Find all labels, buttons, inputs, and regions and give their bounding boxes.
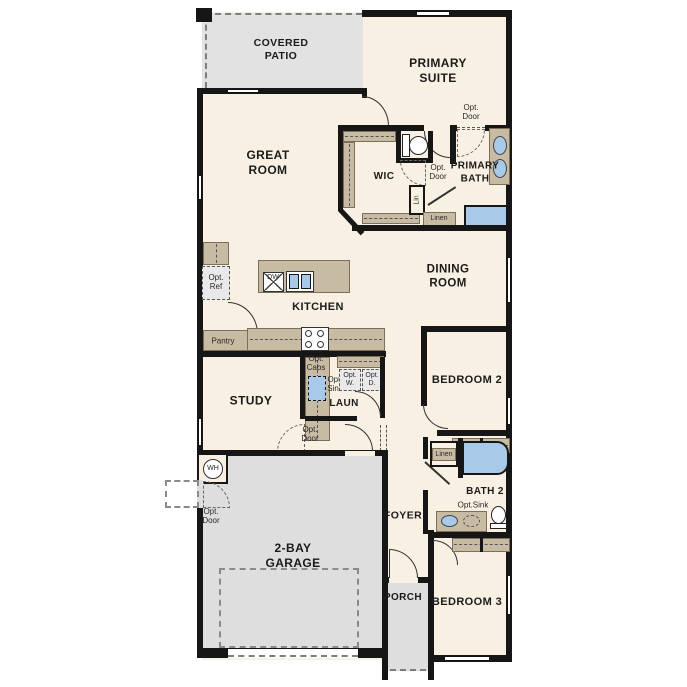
bedroom3-label: BEDROOM 3: [432, 596, 502, 610]
wic-label: WIC: [374, 171, 395, 184]
opt-door-label-wic: Opt. Door: [429, 164, 446, 182]
floor-plan: Opt. Door WIC Opt. Door PRIMARY BATH Lin…: [0, 0, 687, 687]
window-great-room-left: [198, 176, 202, 199]
laun-opt-sink: [308, 376, 326, 401]
wall-bedroom2-top: [421, 326, 512, 332]
wall-bedroom2-left: [421, 326, 427, 406]
garage-opt-door-outline: [165, 480, 199, 508]
wall-bath2-hall-top: [423, 437, 428, 459]
bedroom3-closet-divider: [480, 538, 483, 552]
linen-bath2-label: Linen: [435, 451, 452, 459]
garage-door-zone: [219, 568, 359, 648]
burner-1: [305, 330, 312, 337]
wic-shelf-left-line: [349, 144, 350, 206]
bedroom2-label: BEDROOM 2: [432, 374, 502, 388]
great-room-label: GREAT ROOM: [246, 148, 289, 178]
wall-garage-bottom-right: [358, 648, 388, 658]
porch-label: PORCH: [384, 592, 422, 605]
linen-primary-label: Linen: [430, 215, 447, 223]
wall-bath2-hall-bottom: [423, 490, 428, 534]
bath2-tub: [462, 441, 509, 475]
wall-garage-bottom-left: [197, 648, 228, 658]
kitchen-sink-basin-2: [301, 274, 311, 289]
covered-patio-label: COVERED PATIO: [254, 37, 309, 63]
foyer-opening-dash-1: [380, 425, 381, 451]
patio-edge-left: [205, 15, 207, 88]
laun-shelf: [337, 356, 384, 368]
garage-door-dash: [228, 655, 358, 657]
opt-door-label-garage: Opt. Door: [202, 508, 219, 526]
primary-suite-label: PRIMARY SUITE: [409, 56, 467, 86]
patio-post: [196, 8, 212, 22]
wall-garage-right: [382, 450, 388, 680]
window-bedroom3-bottom: [445, 656, 489, 661]
window-study-left: [198, 419, 202, 445]
wall-bath-block-bottom: [352, 225, 512, 231]
burner-2: [317, 330, 324, 337]
wall-patio-bottom: [197, 88, 367, 94]
bath2-label: BATH 2: [466, 486, 504, 499]
laun-shelf-line: [339, 361, 382, 362]
wall-laun-bottom: [305, 416, 357, 421]
wall-toilet-niche-right: [428, 131, 433, 162]
wall-right: [506, 10, 512, 662]
foyer-label: FOYER: [384, 509, 422, 522]
patio-edge-top: [205, 13, 362, 15]
opt-ref-label: Opt. Ref: [208, 274, 223, 292]
dishwasher-label: DW: [267, 274, 279, 282]
kitchen-label: KITCHEN: [292, 301, 344, 315]
foyer-opening-dash-2: [386, 425, 387, 451]
wh-label: WH: [207, 465, 219, 473]
wall-laun-right: [380, 357, 385, 418]
wall-bedroom2-bottom: [437, 430, 512, 436]
window-great-room-top: [228, 89, 258, 93]
bath2-opt-sink: [463, 515, 480, 527]
burner-4: [317, 341, 324, 348]
primary-sink-1: [493, 136, 507, 155]
opt-washer-label: Opt. W.: [343, 372, 356, 388]
bath2-toilet-bowl: [491, 506, 506, 524]
kitchen-cabinet-left-line: [216, 244, 217, 263]
bath2-sink: [441, 515, 458, 527]
lin-closet-label: Lin: [414, 195, 421, 204]
garage-label: 2-BAY GARAGE: [265, 541, 320, 571]
pantry-label: Pantry: [211, 338, 234, 347]
window-bedroom2: [507, 398, 511, 424]
study-label: STUDY: [230, 394, 273, 409]
bath2-toilet-tank: [490, 523, 507, 529]
garage-hall-door-opening: [345, 451, 375, 456]
wall-bath-stub: [450, 128, 456, 164]
opt-cabs-label: Opt. Cabs: [307, 355, 326, 373]
porch-edge-bottom: [390, 669, 426, 671]
dining-room-label: DINING ROOM: [427, 263, 470, 292]
opt-sink-label-bath2: Opt.Sink: [458, 502, 489, 511]
burner-3: [305, 341, 312, 348]
primary-bath-label: PRIMARY BATH: [451, 161, 500, 186]
wic-shelf-bottom-line: [364, 218, 418, 219]
opt-dryer-label: Opt. D.: [365, 372, 378, 388]
window-bedroom3-right: [507, 576, 511, 614]
kitchen-sink-basin-1: [289, 274, 299, 289]
opt-door-label-suite: Opt. Door: [462, 104, 479, 122]
wic-shelf-top-line: [345, 136, 394, 137]
window-primary-suite-top: [417, 11, 449, 16]
opt-door-jamb-suite: [457, 127, 485, 128]
window-dining: [507, 258, 511, 302]
opt-door-label-study: Opt. Door: [301, 426, 318, 444]
primary-toilet-bowl: [409, 136, 428, 155]
wall-left: [197, 88, 203, 650]
